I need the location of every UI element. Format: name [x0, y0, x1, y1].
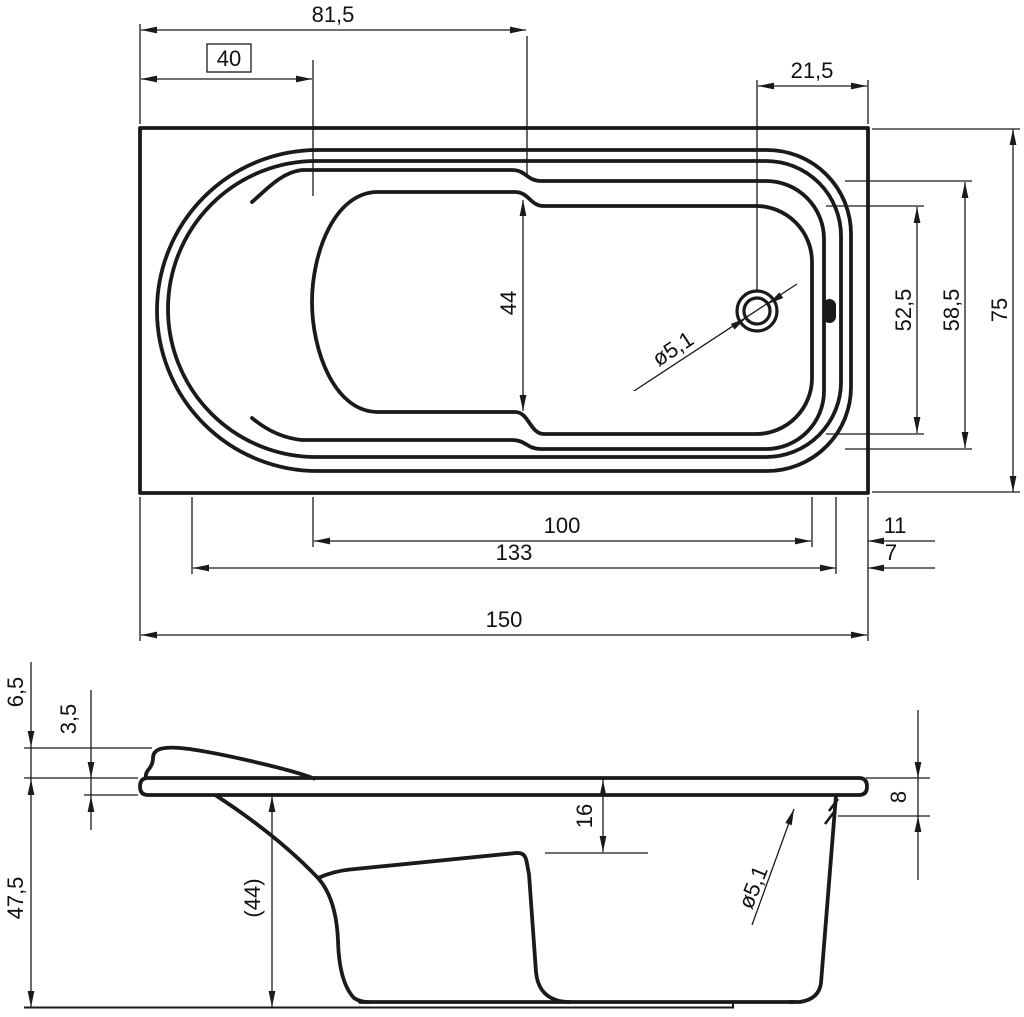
top-view-dimension-labels: 81,5 40 21,5 75 58,5 52,5 44 ø5,1 100 11…: [207, 2, 1012, 632]
dim-headrest-height: 6,5: [3, 677, 28, 708]
side-view-arrowheads: [28, 731, 922, 1007]
technical-drawing-page: 81,5 40 21,5 75 58,5 52,5 44 ø5,1 100 11…: [0, 0, 1024, 1017]
top-view-dimension-lines: [141, 30, 1013, 635]
side-view-dimension-labels: 6,5 3,5 47,5 (44) 16 8 ø5,1: [3, 677, 911, 920]
side-view-dimension-lines: [31, 662, 918, 1007]
dim-inner-to-edge: 7: [885, 540, 897, 565]
dim-drain-diameter: ø5,1: [648, 326, 699, 371]
dim-drain-from-right: 21,5: [791, 58, 834, 83]
dim-opening-width-right: 58,5: [939, 289, 964, 332]
dim-seat-length: 40: [217, 46, 241, 71]
side-view-extension-lines: [24, 748, 930, 853]
dim-rim-top-length: 81,5: [312, 2, 355, 27]
dim-overflow-diameter: ø5,1: [733, 862, 773, 912]
dim-total-height: 47,5: [3, 877, 28, 920]
dim-height-under-rim: (44): [240, 878, 265, 917]
headrest-profile: [146, 748, 314, 779]
drain-wall-profile: [790, 796, 836, 1003]
dim-inner-width-right: 52,5: [891, 289, 916, 332]
rim-deck-profile: [140, 778, 867, 795]
dim-rim-thickness: 3,5: [56, 704, 81, 735]
dim-floor-width: 44: [496, 291, 521, 315]
seat-surface-profile: [318, 853, 516, 878]
overflow-mark: [823, 299, 836, 323]
dim-overflow-from-top: 8: [886, 791, 911, 803]
dim-inner-length: 133: [496, 540, 533, 565]
side-view: 6,5 3,5 47,5 (44) 16 8 ø5,1: [3, 662, 930, 1008]
dim-floor-length: 100: [544, 513, 581, 538]
dim-overall-length: 150: [486, 607, 523, 632]
dim-floor-to-edge: 11: [884, 513, 907, 538]
top-view: 81,5 40 21,5 75 58,5 52,5 44 ø5,1 100 11…: [140, 2, 1020, 641]
dim-seat-depth: 16: [572, 804, 597, 828]
back-wall-profile: [216, 796, 368, 1003]
dim-overall-width: 75: [987, 298, 1012, 322]
bathtub-dimension-drawing: 81,5 40 21,5 75 58,5 52,5 44 ø5,1 100 11…: [0, 0, 1024, 1017]
seat-step-profile: [516, 853, 570, 1002]
